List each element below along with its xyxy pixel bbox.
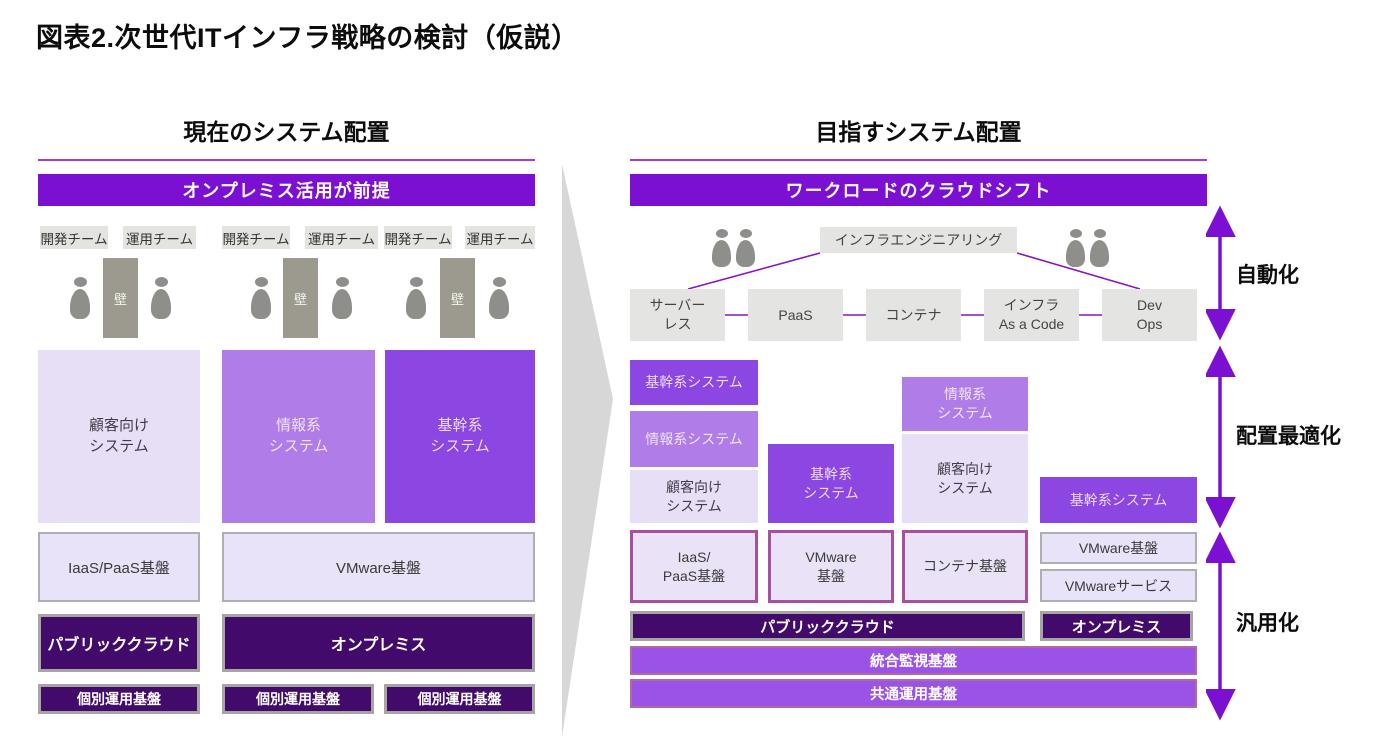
person-head [1070, 229, 1082, 238]
person-head [336, 277, 349, 287]
team-label: 運用チーム [305, 226, 378, 249]
platform-box-iaas-paas: IaaS/PaaS基盤 [38, 532, 200, 602]
page-title: 図表2.次世代ITインフラ戦略の検討（仮説） [36, 16, 579, 55]
wall-block: 壁 [103, 258, 138, 338]
transition-arrow [562, 164, 613, 737]
person-body [736, 240, 755, 267]
right-heading-rule [630, 159, 1207, 161]
left-heading-rule [38, 159, 535, 161]
platform-box-vmware-onprem: VMware基盤 [1040, 532, 1197, 564]
right-panel-heading: 目指すシステム配置 [630, 113, 1207, 147]
infra-engineering-box: インフラエンジニアリング [820, 227, 1017, 253]
individual-ops-box: 個別運用基盤 [222, 684, 374, 714]
person-body [1066, 240, 1085, 267]
person-head [155, 277, 168, 287]
person-icon [406, 277, 426, 319]
public-cloud-box: パブリッククラウド [38, 614, 200, 672]
team-label: 運用チーム [465, 226, 535, 249]
onpremise-box: オンプレミス [1040, 611, 1193, 641]
platform-box-iaas-paas: IaaS/ PaaS基盤 [630, 530, 758, 603]
system-box-customer: 顧客向け システム [38, 350, 200, 523]
system-box-core: 基幹系 システム [768, 444, 894, 523]
person-head [493, 277, 506, 287]
person-icon [712, 229, 732, 267]
person-head [740, 229, 752, 238]
person-head [255, 277, 268, 287]
figure-canvas: 図表2.次世代ITインフラ戦略の検討（仮説） 現在のシステム配置 オンプレミス活… [0, 0, 1378, 750]
person-body [151, 289, 171, 319]
system-box-customer: 顧客向け システム [630, 470, 758, 523]
tech-box-paas: PaaS [748, 289, 843, 341]
right-banner: ワークロードのクラウドシフト [630, 174, 1207, 206]
public-cloud-box: パブリッククラウド [630, 611, 1025, 641]
person-body [406, 289, 426, 319]
wall-block: 壁 [440, 258, 475, 338]
left-panel-heading: 現在のシステム配置 [38, 113, 535, 147]
left-banner: オンプレミス活用が前提 [38, 174, 535, 206]
platform-box-vmware-service: VMwareサービス [1040, 569, 1197, 602]
system-box-info: 情報系システム [630, 411, 758, 467]
person-icon [251, 277, 271, 319]
system-box-core: 基幹系システム [1040, 477, 1197, 523]
person-head [74, 277, 87, 287]
person-icon [489, 277, 509, 319]
tech-box-container: コンテナ [866, 289, 961, 341]
axis-label-automation: 自動化 [1236, 259, 1299, 289]
person-head [716, 229, 728, 238]
individual-ops-box: 個別運用基盤 [384, 684, 535, 714]
system-box-info: 情報系 システム [902, 377, 1028, 431]
person-body [251, 289, 271, 319]
person-body [489, 289, 509, 319]
individual-ops-box: 個別運用基盤 [38, 684, 200, 714]
platform-box-vmware: VMware基盤 [222, 532, 535, 602]
system-box-core: 基幹系 システム [385, 350, 535, 523]
axis-arrows [1206, 198, 1240, 728]
system-box-core: 基幹系システム [630, 360, 758, 405]
person-body [712, 240, 731, 267]
system-box-customer: 顧客向け システム [902, 434, 1028, 523]
tech-box-iac: インフラ As a Code [984, 289, 1079, 341]
person-icon [1090, 229, 1110, 267]
platform-box-container: コンテナ基盤 [902, 530, 1028, 603]
platform-box-vmware: VMware 基盤 [768, 530, 894, 603]
person-body [1090, 240, 1109, 267]
common-ops-band: 共通運用基盤 [630, 679, 1197, 708]
tech-box-serverless: サーバー レス [630, 289, 725, 341]
team-label: 運用チーム [123, 226, 196, 249]
person-body [332, 289, 352, 319]
wall-block: 壁 [283, 258, 318, 338]
team-label: 開発チーム [384, 226, 452, 249]
axis-label-optimization: 配置最適化 [1236, 420, 1341, 450]
person-icon [151, 277, 171, 319]
system-box-info: 情報系 システム [222, 350, 375, 523]
person-icon [1066, 229, 1086, 267]
onpremise-box: オンプレミス [222, 614, 535, 672]
integrated-monitoring-band: 統合監視基盤 [630, 646, 1197, 675]
tech-box-devops: Dev Ops [1102, 289, 1197, 341]
person-icon [332, 277, 352, 319]
person-head [1094, 229, 1106, 238]
person-icon [70, 277, 90, 319]
person-body [70, 289, 90, 319]
team-label: 開発チーム [222, 226, 290, 249]
person-head [410, 277, 423, 287]
person-icon [736, 229, 756, 267]
team-label: 開発チーム [40, 226, 108, 249]
axis-label-generalization: 汎用化 [1236, 607, 1299, 637]
